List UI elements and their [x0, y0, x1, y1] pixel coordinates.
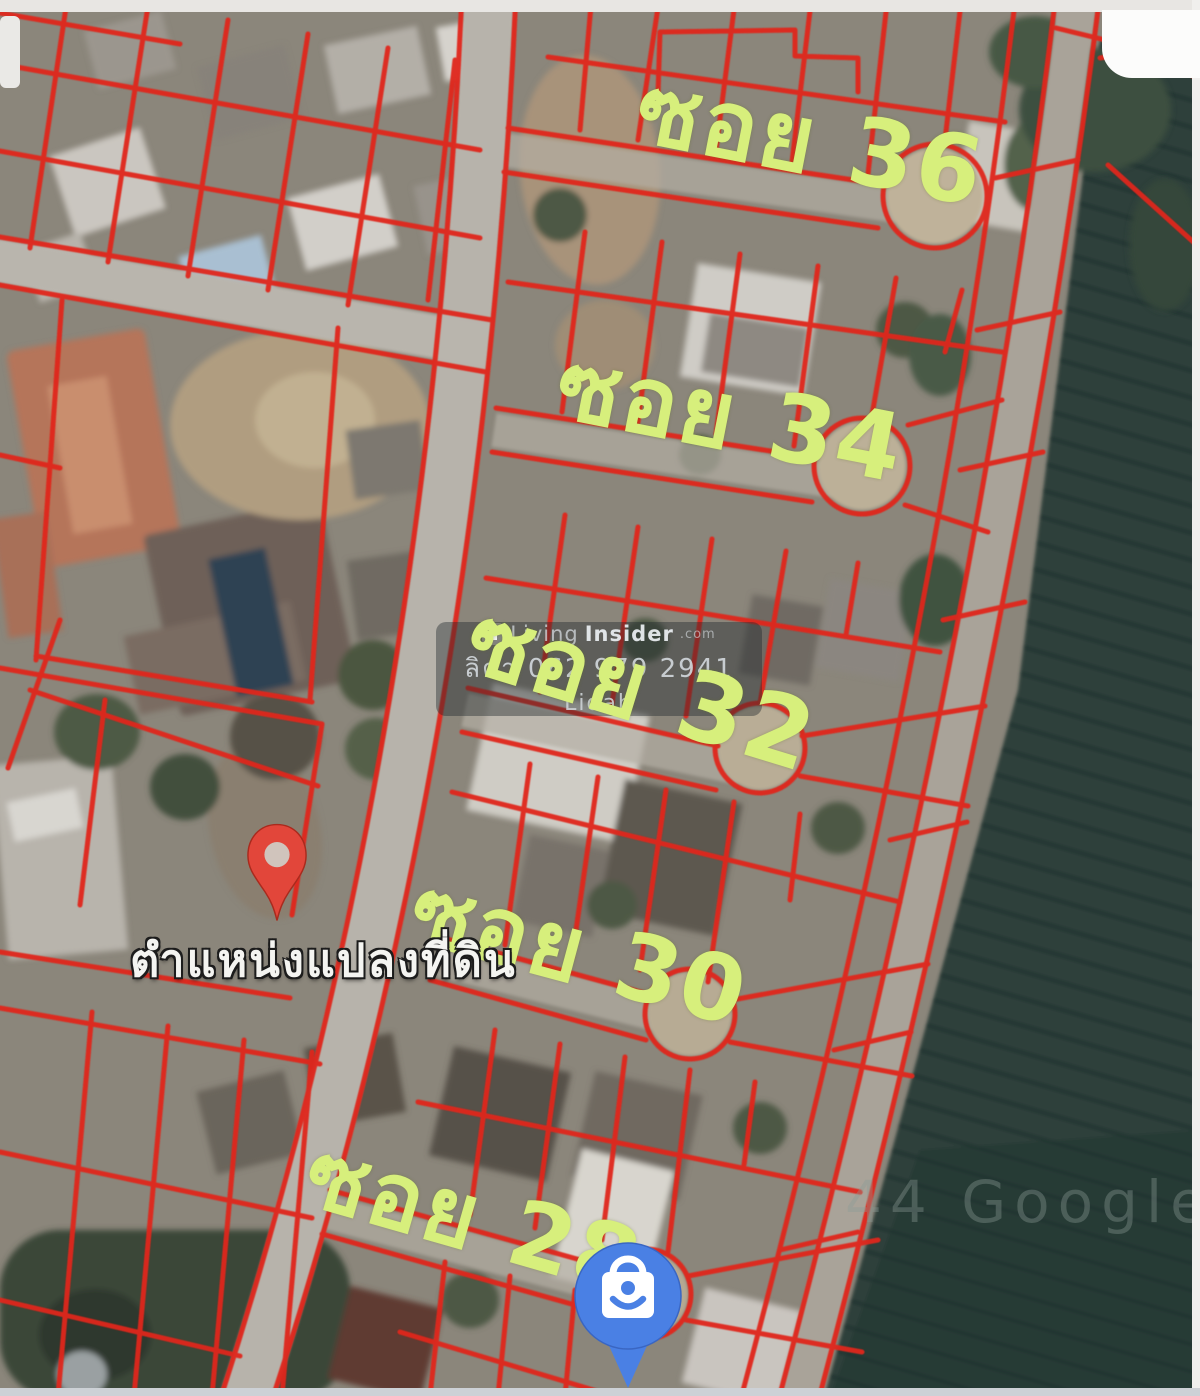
brand-tld: .com [680, 627, 716, 642]
screen-corner-top-right [1102, 10, 1200, 78]
screen-edge-right [1192, 0, 1200, 1396]
screen-corner-top-left [0, 16, 20, 88]
screen-edge-bottom [0, 1388, 1200, 1396]
map-canvas[interactable]: ซอย 36 ซอย 34 ซอย 30 ซอย 28 LivingInside… [0, 0, 1200, 1396]
location-pin-icon[interactable] [246, 818, 308, 928]
screen-edge-top [0, 0, 1200, 12]
google-attribution: 44 Google [845, 1168, 1200, 1236]
shopping-poi-pin[interactable] [566, 1236, 690, 1396]
location-marker-label: ตำแหน่งแปลงที่ดิน [130, 924, 470, 996]
